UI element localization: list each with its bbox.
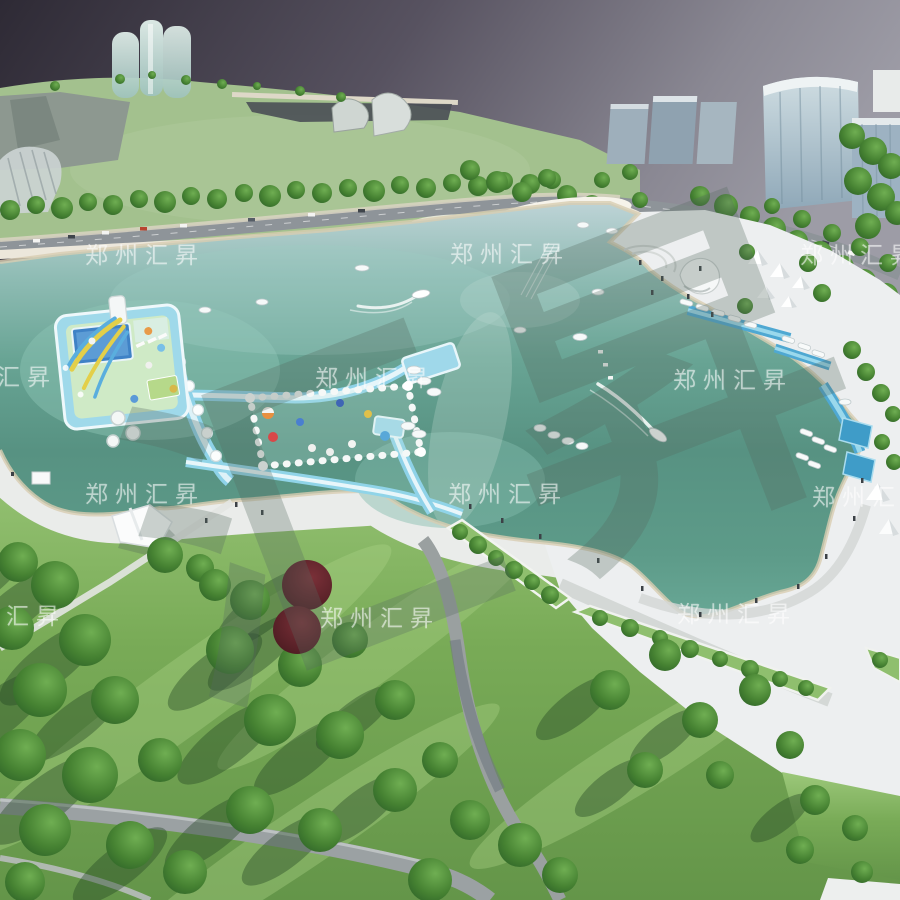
city-buildings-center — [607, 96, 738, 164]
aerial-render: 汇昇 郑州汇昇郑州汇昇郑州汇昇郑州汇昇郑州汇昇郑州汇昇郑州汇昇郑州汇昇郑州汇昇郑… — [0, 0, 900, 900]
scene-canvas — [0, 0, 900, 900]
